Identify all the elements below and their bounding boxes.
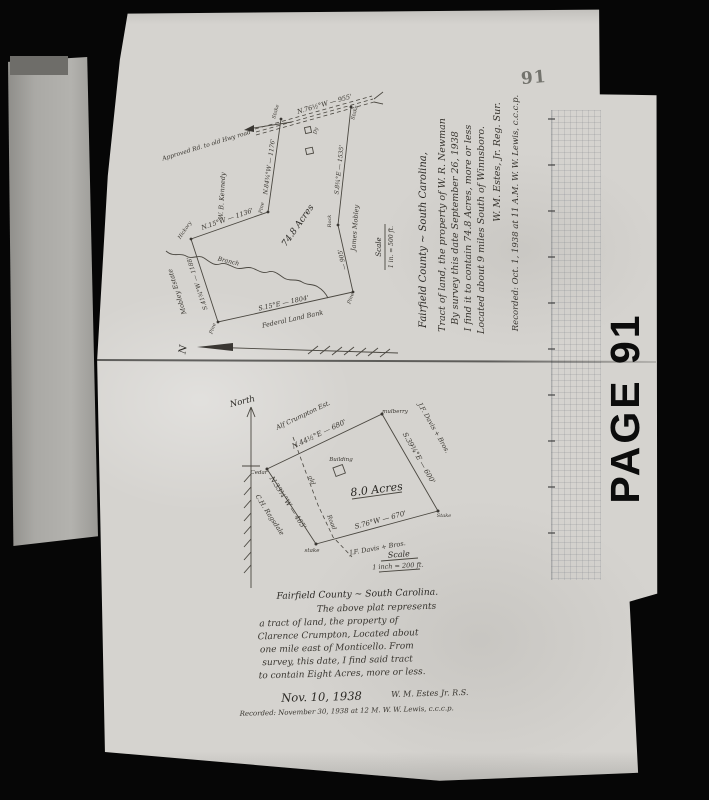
bottom-caption: Fairfield County ~ South Carolina. The a… [235, 586, 469, 718]
top-north-arrow-icon [197, 343, 398, 357]
top-caption-line: I find it to contain 74.8 Acres, more or… [463, 125, 474, 333]
bottom-caption-line: Clarence Crumpton, Located about [258, 628, 420, 642]
building-label: Building [328, 457, 353, 463]
corner-pine-east: Pine [346, 292, 356, 306]
bottom-caption-line: The above plat represents [317, 602, 437, 615]
old-road-line [293, 437, 352, 557]
bottom-scale: Scale 1 inch = 200 ft. [372, 549, 424, 572]
top-plat: N Dy Approved Rd. to old Hwy road N.76½°… [161, 92, 521, 357]
top-scale-value: 1 in. = 500 ft. [388, 226, 395, 268]
owner-mobley-estate: Mobley Estate [166, 268, 189, 317]
top-caption-signature: W. M. Estes, Jr. Reg. Sur. [492, 102, 503, 221]
top-building-mark: Dy [312, 127, 319, 136]
corner-mulberry: mulberry [382, 409, 409, 415]
bottom-caption-surveyor: W. M. Estes Jr. R.S. [391, 688, 468, 699]
owner-federal: Federal Land Bank [260, 308, 324, 330]
top-caption-recorded: Recorded: Oct. 1, 1938 at 11 A.M. W. W. … [511, 95, 521, 332]
plat-drawings: N Dy Approved Rd. to old Hwy road N.76½°… [0, 0, 709, 800]
bottom-caption-line: survey, this date, I find said tract [262, 654, 413, 668]
old-road-word-1: old [306, 475, 316, 486]
bottom-caption-line: one mile east of Monticello. From [260, 641, 414, 655]
bearing-bottom-line: S.15°E — 1804' [258, 294, 310, 313]
bottom-caption-line: to contain Eight Acres, more or less. [259, 667, 426, 681]
bottom-caption-line: a tract of land, the property of [259, 616, 400, 630]
corner-pine-south: Pine [208, 322, 218, 336]
top-caption-line: Fairfield County ~ South Carolina, [418, 152, 429, 329]
owner-james-mobley: James Mobley [349, 204, 360, 253]
top-scale: Scale 1 in. = 500 ft. [375, 224, 395, 270]
top-north-letter: N [177, 343, 190, 356]
bottom-plat: North old Road Building 8.0 Acres N.44½°… [228, 394, 469, 718]
bottom-plat-boundary [267, 414, 438, 544]
owner-ne: J.F. Davis + Bros. [415, 400, 451, 455]
side-sw-bearing: S.76°W — 670' [354, 509, 407, 530]
old-road-word-2: Road [325, 513, 338, 531]
top-caption: Fairfield County ~ South Carolina, Tract… [418, 95, 521, 335]
bottom-plat-corner-dots [266, 413, 440, 546]
owner-kennedy: W. B. Kennedy [217, 172, 227, 220]
bottom-caption-line: Fairfield County ~ South Carolina. [275, 587, 438, 602]
top-caption-line: Tract of land, the property of W. R. New… [437, 118, 448, 332]
stake-west-label: Stake [271, 104, 281, 120]
corner-cedar: Cedar [251, 470, 268, 476]
bottom-north-label: North [228, 394, 256, 410]
bottom-caption-date: Nov. 10, 1938 [280, 689, 362, 705]
corner-stake-s: stake [305, 548, 321, 554]
bottom-acreage: 8.0 Acres [350, 480, 404, 499]
top-acreage: 74.8 Acres [280, 203, 316, 249]
corner-rock: Rock [327, 215, 333, 229]
top-caption-line: By survey this date September 26, 1938 [450, 131, 461, 326]
creek-label: Branch [216, 255, 240, 267]
bottom-caption-recorded: Recorded: November 30, 1938 at 12 M. W. … [239, 704, 454, 718]
building-square [333, 465, 345, 477]
road-label: Approved Rd. to old Hwy road [161, 129, 252, 163]
bearing-right-lower: — 905' [337, 248, 349, 270]
bottom-scale-title: Scale [388, 549, 411, 560]
top-scale-title: Scale [375, 237, 383, 256]
corner-stake-e: Stake [437, 513, 451, 519]
top-plat-corner-dots [190, 106, 355, 324]
microfilm-scan: 91 PAGE 91 [0, 0, 709, 800]
top-caption-line: Located about 9 miles South of Winnsboro… [476, 126, 487, 335]
